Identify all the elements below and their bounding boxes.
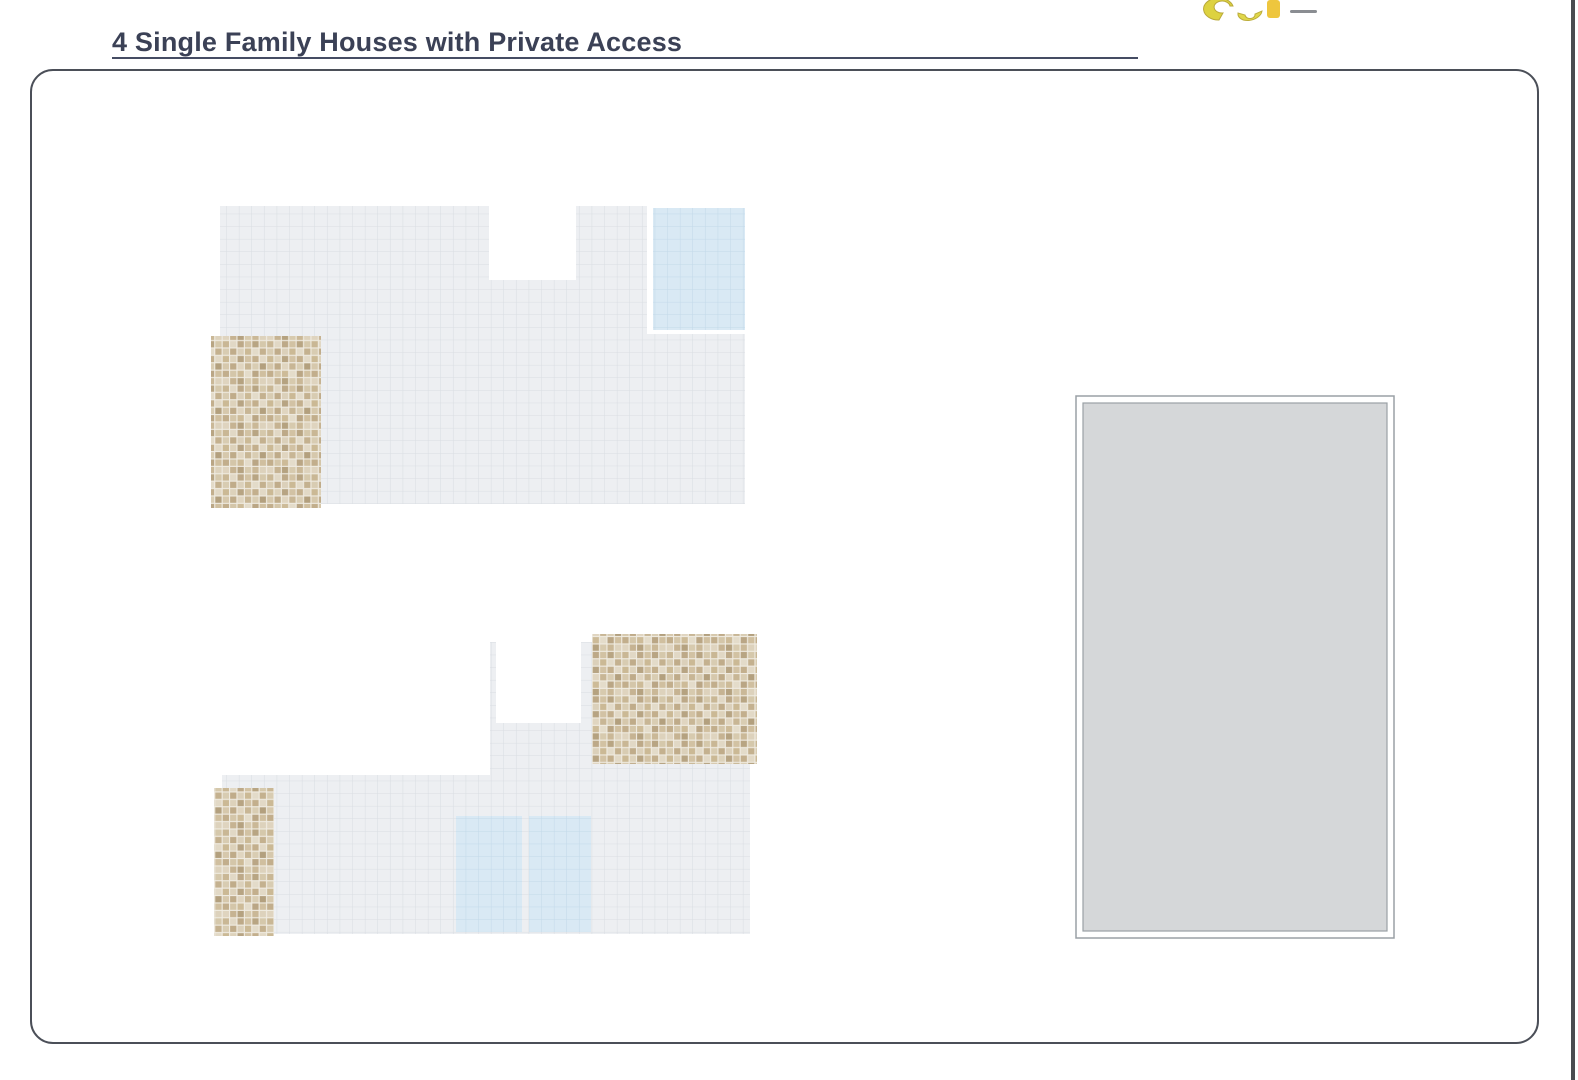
svg-text:4 Single Family Houses with Pr: 4 Single Family Houses with Private Acce…	[112, 27, 682, 57]
